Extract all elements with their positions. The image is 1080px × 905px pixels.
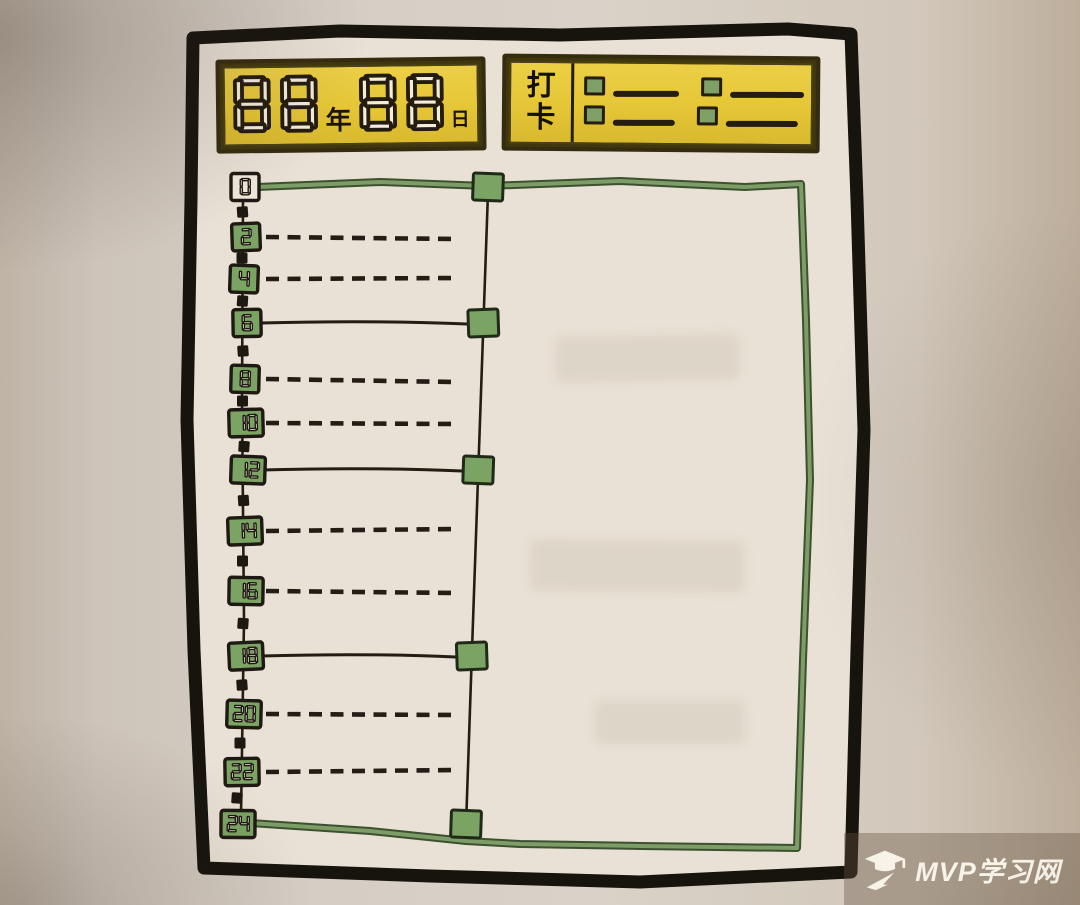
chain-connector-square: [237, 345, 249, 357]
checkin-checkbox: [697, 106, 718, 125]
checkin-label-char-2: 卡: [526, 102, 555, 134]
paper-page: [187, 29, 864, 882]
year-label: 年: [326, 107, 352, 133]
checkin-blank-line: [726, 121, 798, 127]
hour-row-dashed-line: [266, 237, 455, 239]
seven-seg-digit: [357, 71, 398, 133]
hour-node-6: [233, 309, 261, 336]
checkin-checkbox: [584, 105, 605, 124]
hour-row-dashed-line: [266, 278, 455, 279]
hour-node-22: [225, 758, 259, 786]
hour-row-dashed-line: [266, 529, 455, 531]
hour-row-dashed-line: [266, 714, 455, 715]
marker-square-hour-24: [451, 810, 482, 838]
hour-row-dashed-line: [266, 591, 455, 593]
seven-seg-digit: [404, 71, 445, 133]
marker-square-hour-0: [473, 173, 504, 201]
hour-node-0: [231, 174, 259, 201]
checkin-row: [584, 76, 804, 98]
checkin-slots: [574, 63, 815, 144]
hour-node-16: [229, 577, 263, 605]
photo-of-hand-drawn-planner-page: 年 日 打 卡: [0, 0, 1080, 905]
marker-square-hour-18: [456, 642, 487, 670]
checkin-blank-line: [613, 91, 679, 97]
hour-row-dashed-line: [266, 423, 455, 424]
page-bleed-smudge: [530, 539, 746, 593]
hour-row-dashed-line: [266, 770, 455, 772]
chain-connector-square: [237, 556, 248, 567]
hour-node-18: [228, 642, 263, 670]
checkin-checkbox: [584, 76, 605, 95]
checkin-label: 打 卡: [511, 63, 575, 143]
hour-node-2: [232, 223, 261, 251]
chain-connector-square: [237, 253, 248, 264]
marker-square-hour-6: [468, 309, 499, 337]
hour-node-20: [227, 700, 262, 728]
watermark-text: MVP学习网: [915, 850, 1061, 889]
seven-seg-digit: [232, 73, 273, 135]
hour-node-12: [231, 456, 266, 484]
chain-connector-square: [238, 495, 250, 507]
chain-connector-square: [231, 792, 243, 804]
date-digits-day: [357, 71, 445, 134]
date-digits-year: [232, 72, 320, 135]
seven-seg-digit: [279, 72, 320, 134]
chain-connector-square: [236, 679, 248, 691]
page-bleed-smudge: [595, 700, 745, 744]
chain-connector-square: [237, 206, 249, 218]
chain-connector-square: [237, 295, 249, 307]
chain-connector-square: [237, 396, 248, 407]
checkin-box-inner: 打 卡: [509, 61, 814, 147]
hour-row-dashed-line: [266, 379, 455, 382]
checkin-row: [584, 105, 804, 127]
date-box-inner: 年 日: [223, 63, 480, 146]
date-box: 年 日: [215, 56, 486, 153]
page-bleed-smudge: [555, 333, 741, 382]
chain-connector-square: [235, 738, 246, 749]
marker-square-hour-12: [463, 456, 494, 484]
checkin-box: 打 卡: [502, 54, 821, 154]
checkin-blank-line: [730, 92, 804, 98]
chain-connector-square: [237, 618, 249, 630]
watermark: MVP学习网: [844, 833, 1080, 905]
hour-node-8: [231, 365, 260, 393]
hour-node-14: [228, 517, 263, 545]
checkin-checkbox: [701, 77, 722, 96]
day-label: 日: [451, 111, 470, 130]
graduation-cap-icon: [863, 846, 907, 892]
checkin-blank-line: [613, 120, 675, 126]
chain-connector-square: [238, 441, 250, 453]
hour-node-10: [229, 409, 264, 437]
hour-node-4: [230, 265, 259, 293]
checkin-label-char-1: 打: [526, 70, 555, 102]
hour-node-24: [221, 810, 255, 837]
